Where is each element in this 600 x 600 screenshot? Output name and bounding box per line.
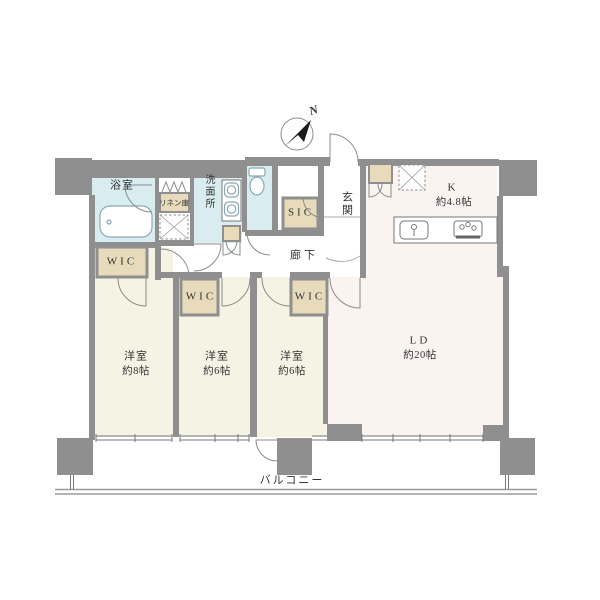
wic2-label: WIC — [186, 292, 216, 303]
left-wall — [89, 195, 95, 440]
bedroom1-2-wall — [173, 277, 179, 437]
entrance-right-wall — [360, 160, 366, 278]
bedroom1-size: 約8帖 — [122, 367, 150, 378]
bedroom2-label: 洋室 — [205, 352, 229, 363]
pillar-bottom-right — [500, 438, 535, 475]
bedroom1-label: 洋室 — [124, 352, 148, 363]
right-wall-upper — [497, 196, 503, 266]
right-wall-jog — [497, 266, 509, 277]
top-wall-middle — [245, 157, 330, 166]
linen-right-wall — [190, 178, 194, 240]
bathroom-right-wall — [155, 178, 159, 248]
washroom-label: 洗面所 — [203, 174, 213, 210]
washer-pan-icon — [160, 215, 188, 239]
balcony-label: バルコニー — [260, 476, 325, 487]
entrance-door-arc — [330, 134, 358, 162]
bedroom3-label: 洋室 — [280, 352, 304, 363]
kitchen-label: K — [448, 183, 459, 194]
pillar-top-right — [499, 160, 537, 196]
top-wall-left — [92, 160, 245, 178]
bathroom-label: 浴室 — [110, 181, 134, 192]
linen-label: リネン庫 — [159, 199, 189, 207]
bedroom2-size: 約6帖 — [203, 367, 231, 378]
wic1-label: WIC — [107, 257, 137, 268]
corridor-area — [155, 243, 366, 277]
sic-label: SIC — [288, 208, 314, 219]
corridor-label: 廊下 — [290, 251, 318, 262]
kitchen-size: 約4.8帖 — [436, 198, 473, 209]
bedroom2-3-wall — [250, 277, 257, 437]
pillar-bottom-left — [57, 438, 93, 475]
compass-icon — [281, 118, 313, 150]
pillar-bottom-middle — [277, 438, 312, 475]
kitchen-counter-icon — [394, 217, 497, 243]
living-size: 約20帖 — [403, 351, 437, 362]
linen-bottom-wall — [155, 240, 194, 246]
entrance-label: 玄関 — [341, 191, 352, 217]
washroom-toilet-wall — [242, 163, 247, 232]
right-wall-lower — [503, 277, 509, 427]
toilet-icon — [249, 168, 265, 195]
balcony-door-arc — [256, 440, 277, 461]
wic3-label: WIC — [295, 292, 325, 303]
pillar-top-left — [55, 158, 92, 195]
kitchen-closet-box — [369, 164, 392, 183]
washroom-cabinet-box — [223, 226, 240, 241]
toilet-right-wall — [272, 163, 278, 232]
living-label: LD — [410, 336, 431, 347]
ld-bottom-left-block — [327, 424, 362, 441]
vanity-sink-icon — [222, 180, 241, 221]
corridor-top-wall — [245, 230, 322, 236]
refrigerator-space-icon — [399, 165, 425, 190]
bedroom3-size: 約6帖 — [278, 367, 306, 378]
floor-plan: N 浴室 洗面所 リネン庫 WIC WIC WIC SIC 玄関 廊下 K 約4… — [0, 0, 600, 600]
